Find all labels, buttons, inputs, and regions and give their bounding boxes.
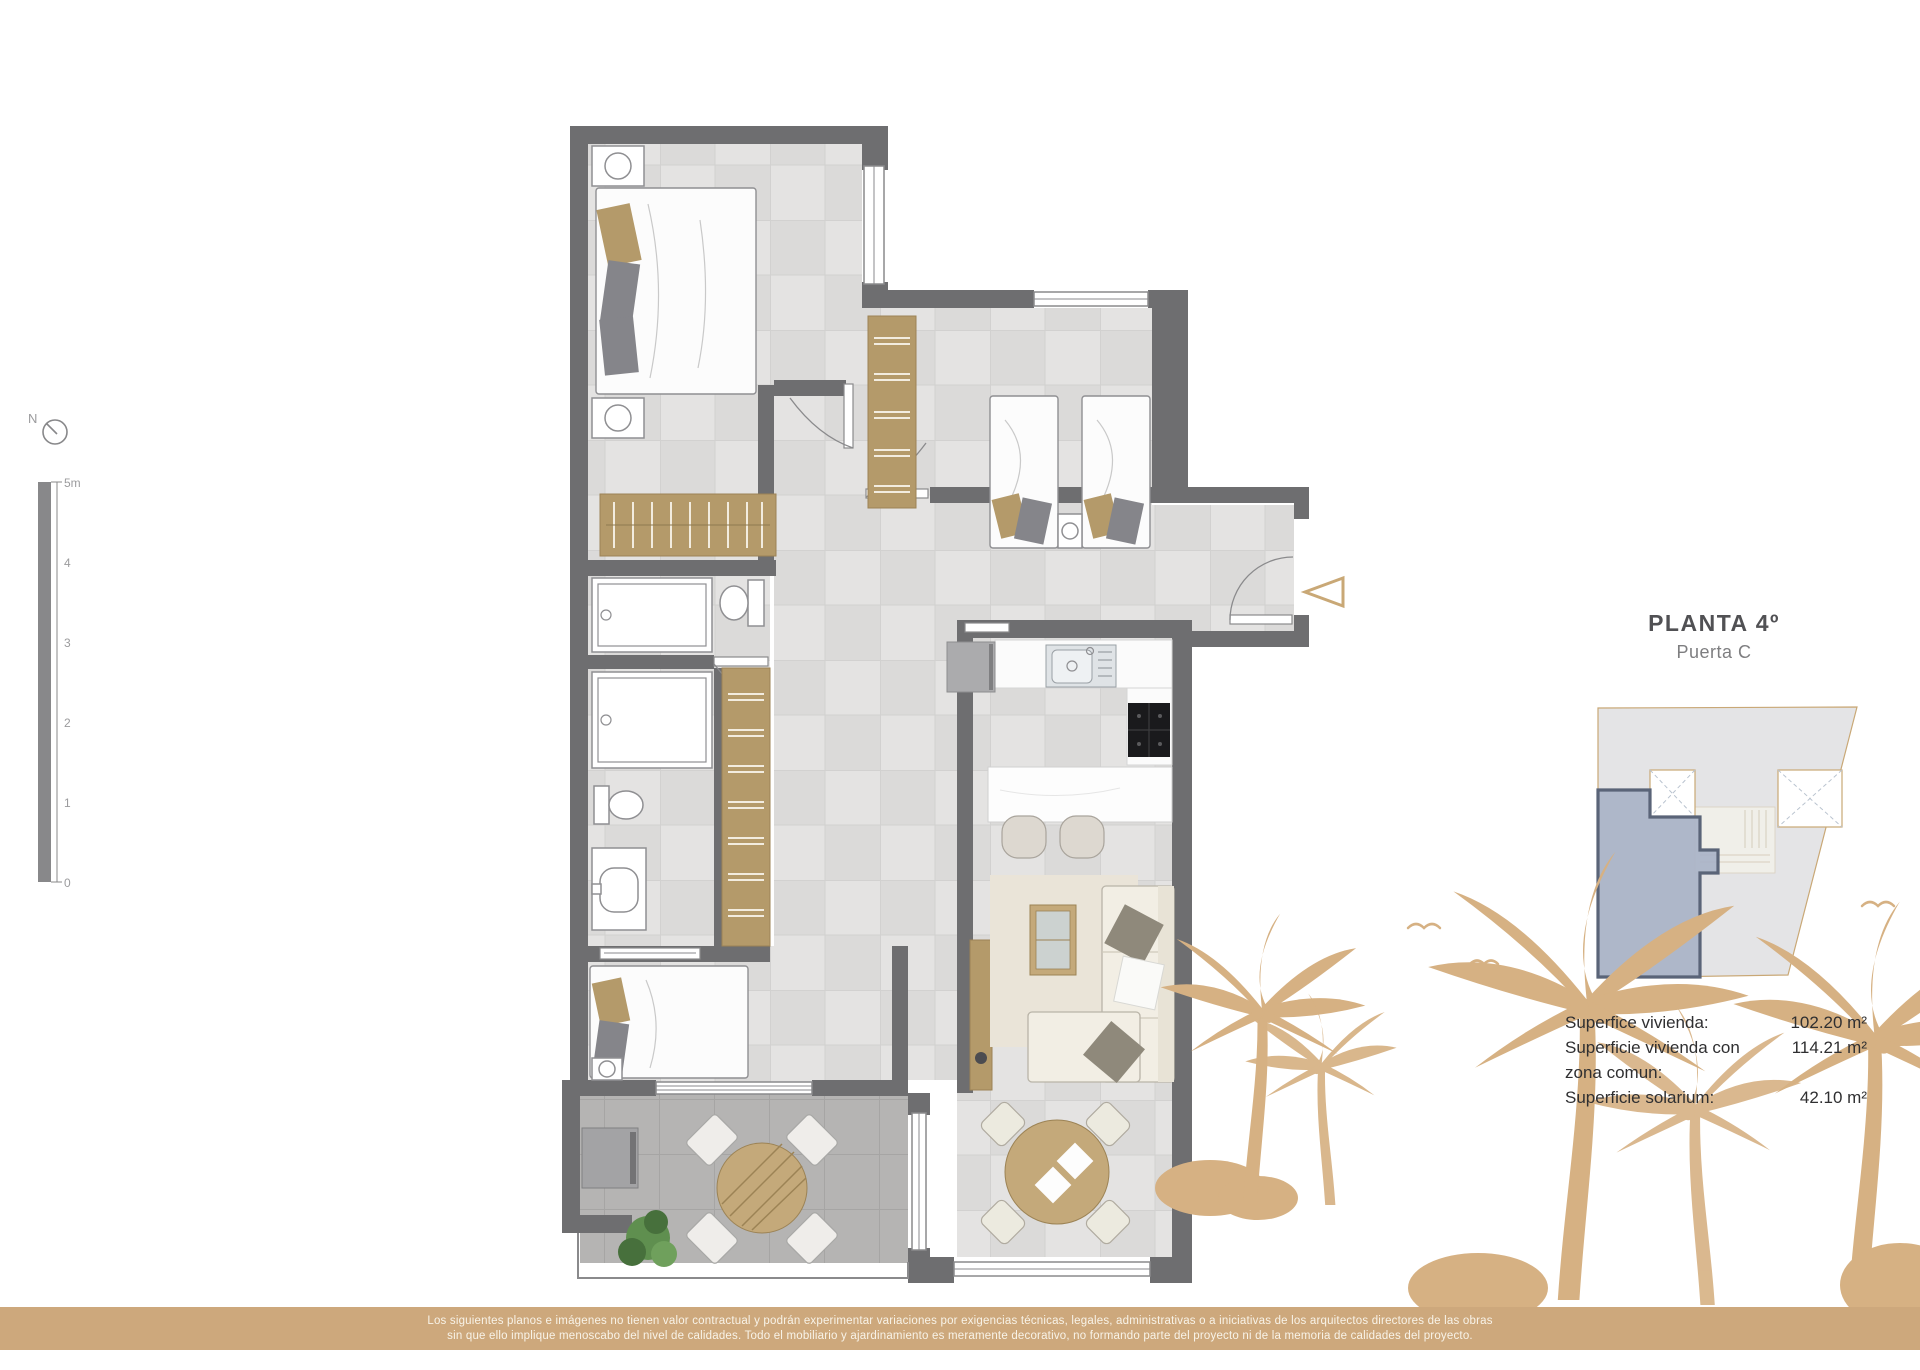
master-bedroom — [592, 146, 776, 556]
page-subtitle: Puerta C — [1564, 642, 1864, 663]
kitchen-opening-leaf — [965, 623, 1009, 632]
title-block: PLANTA 4º Puerta C — [1564, 610, 1864, 663]
area-row: Superficie solarium: 42.10 m² — [1565, 1085, 1867, 1110]
corridor-wardrobe — [722, 668, 770, 946]
hall-sliding-door — [970, 940, 992, 1090]
svg-text:2: 2 — [64, 716, 71, 730]
disclaimer-line: sin que ello implique menoscabo del nive… — [0, 1329, 1920, 1344]
page-title: PLANTA 4º — [1564, 610, 1864, 637]
stool — [1060, 816, 1104, 858]
scale-bar: 5m 4 3 2 1 0 — [38, 476, 81, 890]
shower — [592, 578, 712, 652]
svg-text:0: 0 — [64, 876, 71, 890]
area-value: 114.21 m² — [1792, 1035, 1867, 1060]
area-value: 42.10 m² — [1800, 1085, 1867, 1110]
bathroom-door-leaf — [714, 657, 768, 666]
area-row: Superficie vivienda con 114.21 m² — [1565, 1035, 1867, 1060]
stool — [1002, 816, 1046, 858]
cooktop — [1128, 703, 1170, 757]
fridge — [947, 642, 995, 692]
disclaimer-band: Los siguientes planos e imágenes no tien… — [0, 1307, 1920, 1350]
bird-icon — [1408, 924, 1440, 928]
master-wardrobe — [600, 494, 776, 556]
svg-text:N: N — [28, 411, 37, 426]
master-door-leaf — [844, 384, 853, 448]
area-label: Superficie solarium: — [1565, 1085, 1714, 1110]
floor-plan-sheet: N 5m 4 3 2 1 0 PLANTA — [0, 0, 1920, 1370]
svg-text:5m: 5m — [64, 476, 81, 490]
area-label: Superficie vivienda con — [1565, 1035, 1740, 1060]
entry-arrow-icon — [1305, 578, 1343, 606]
plan-canvas: N 5m 4 3 2 1 0 — [0, 0, 1920, 1370]
disclaimer-line: Los siguientes planos e imágenes no tien… — [0, 1314, 1920, 1329]
area-label: Superfice vivienda: — [1565, 1010, 1709, 1035]
key-plan — [1598, 707, 1857, 978]
bird-icon — [1862, 902, 1894, 906]
area-value: 102.20 m² — [1790, 1010, 1867, 1035]
area-row: Superfice vivienda: 102.20 m² — [1565, 1010, 1867, 1035]
area-row: zona comun: — [1565, 1060, 1867, 1085]
bedroom3 — [590, 966, 748, 1080]
coffee-table — [1030, 905, 1076, 975]
north-compass: N — [28, 411, 67, 444]
bedroom2-wardrobe — [868, 316, 916, 508]
svg-text:4: 4 — [64, 556, 71, 570]
svg-text:1: 1 — [64, 796, 71, 810]
sink-vanity — [592, 848, 646, 930]
svg-text:3: 3 — [64, 636, 71, 650]
storage-unit — [582, 1128, 638, 1188]
area-table: Superfice vivienda: 102.20 m² Superficie… — [1565, 1010, 1867, 1110]
area-label: zona comun: — [1565, 1060, 1662, 1085]
entry-door-leaf — [1230, 615, 1292, 624]
shower — [592, 672, 712, 768]
kitchen-sink — [1046, 645, 1116, 687]
